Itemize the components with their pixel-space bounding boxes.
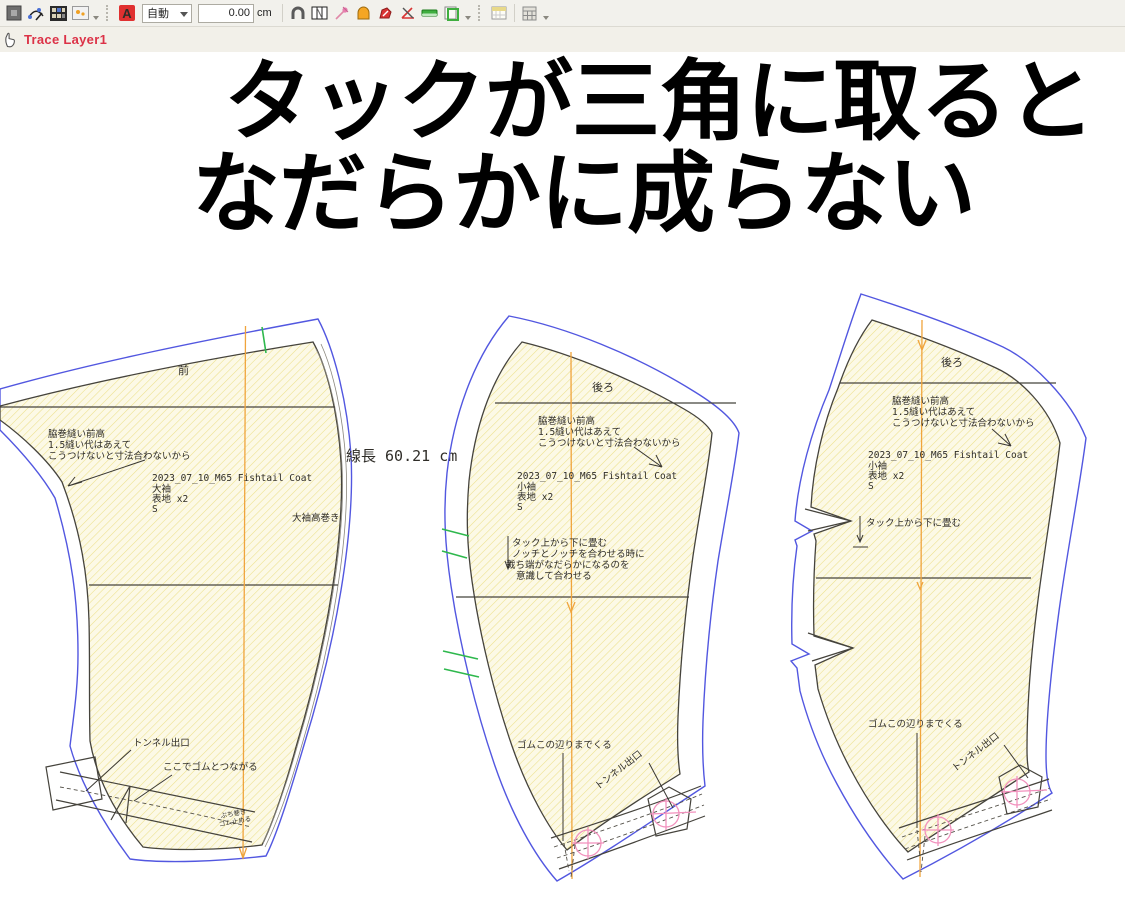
piece1-note-3: こうつけないと寸法合わないから [48,450,191,462]
piece2-tack-note-1: タック上から下に畳む [512,538,607,549]
piece3-meta-title: 2023_07_10_M65 Fishtail Coat [868,450,1028,461]
toolbar-grip[interactable] [106,5,111,21]
piece3-elastic-label: ゴムこの辺りまでくる [868,718,963,730]
piece1-elastic-label: ここでゴムとつながる [163,761,258,773]
piece3-note-3: こうつけないと寸法合わないから [892,417,1035,429]
piece1-side-label: 大袖高巻き [292,512,340,524]
layer-bar: Trace Layer1 [0,27,1125,52]
toolbar-separator [282,4,283,22]
piece1-notch [262,327,266,353]
piece2-part-label: 後ろ [592,380,614,394]
calendar-icon[interactable] [488,2,510,24]
piece1-pattern-outline[interactable] [0,342,342,849]
offset-input[interactable] [198,4,254,23]
clipboard-icon[interactable] [441,2,463,24]
ruler-icon[interactable] [419,2,441,24]
pattern-piece-3[interactable]: 後ろ 脇巻縫い前高 1.5縫い代はあえて こうつけないと寸法合わないから 202… [791,294,1086,879]
piece2-tack-note-2: ノッチとノッチを合わせる時に [512,548,645,560]
piece2-note-3: こうつけないと寸法合わないから [538,437,681,449]
unit-label: cm [257,7,272,19]
piece1-part-label: 前 [178,363,189,377]
pleat-icon[interactable] [309,2,331,24]
piece2-elastic-label: ゴムこの辺りまでくる [517,739,612,751]
image-icon[interactable] [69,2,91,24]
toolbar-overflow-chevron[interactable] [463,4,473,22]
piece2-note-1: 脇巻縫い前高 [538,415,595,427]
magnet-icon[interactable] [287,2,309,24]
main-toolbar: A 自動 cm [0,0,1125,27]
line-length-readout: 線長 60.21 cm [346,447,457,465]
piece2-meta-title: 2023_07_10_M65 Fishtail Coat [517,471,677,482]
svg-text:A: A [122,6,132,21]
piece3-note-1: 脇巻縫い前高 [892,395,949,407]
piece1-meta-title: 2023_07_10_M65 Fishtail Coat [152,473,312,484]
piece1-tunnel-label: トンネル出口 [133,737,190,749]
toolbar-overflow-chevron[interactable] [541,4,551,22]
swatch-icon[interactable] [3,2,25,24]
pattern-piece-1[interactable]: 前 脇巻縫い前高 1.5縫い代はあえて こうつけないと寸法合わないから 2023… [0,319,352,862]
piece3-tack-label: タック上から下に畳む [866,518,961,529]
compass-icon[interactable] [25,2,47,24]
piece3-meta-size: S [868,481,874,492]
text-style-icon[interactable]: A [116,2,138,24]
piece2-note-2: 1.5縫い代はあえて [538,426,621,438]
calculator-icon[interactable] [519,2,541,24]
pin-icon[interactable] [331,2,353,24]
piece2-notch [442,551,467,558]
piece3-part-label: 後ろ [941,355,963,369]
piece2-tack-note-3: 裁ち端がなだらかになるのを [506,559,630,571]
toolbar-separator [514,4,515,22]
toolbar-overflow-chevron[interactable] [91,4,101,22]
piece2-buttonhole-tab [648,787,691,836]
piece2-notch [444,669,479,677]
angle-icon[interactable] [397,2,419,24]
pattern-piece-2[interactable]: 後ろ 脇巻縫い前高 1.5縫い代はあえて こうつけないと寸法合わないから 202… [442,316,739,881]
pattern-cad-app: A 自動 cm [0,0,1125,900]
toolbar-grip[interactable] [478,5,483,21]
piece1-note-2: 1.5縫い代はあえて [48,439,131,451]
piece1-note-1: 脇巻縫い前高 [48,428,105,440]
mode-dropdown[interactable]: 自動 [142,4,192,23]
caption-line-1: タックが三角に取ると [224,56,1094,148]
piece2-meta-size: S [517,502,523,513]
piece2-notch [443,651,478,659]
hand-tool-icon[interactable] [3,31,18,49]
piece2-tack-note-4: 意識して合わせる [516,570,592,582]
trace-icon[interactable] [375,2,397,24]
piece3-note-2: 1.5縫い代はあえて [892,406,975,418]
grid-icon[interactable] [47,2,69,24]
dome-icon[interactable] [353,2,375,24]
caption-line-2: なだらかに成らない [192,148,975,240]
piece1-meta-size: S [152,504,158,515]
mode-dropdown-value: 自動 [147,5,169,21]
chevron-down-icon [180,12,188,17]
active-layer-label: Trace Layer1 [24,32,107,47]
